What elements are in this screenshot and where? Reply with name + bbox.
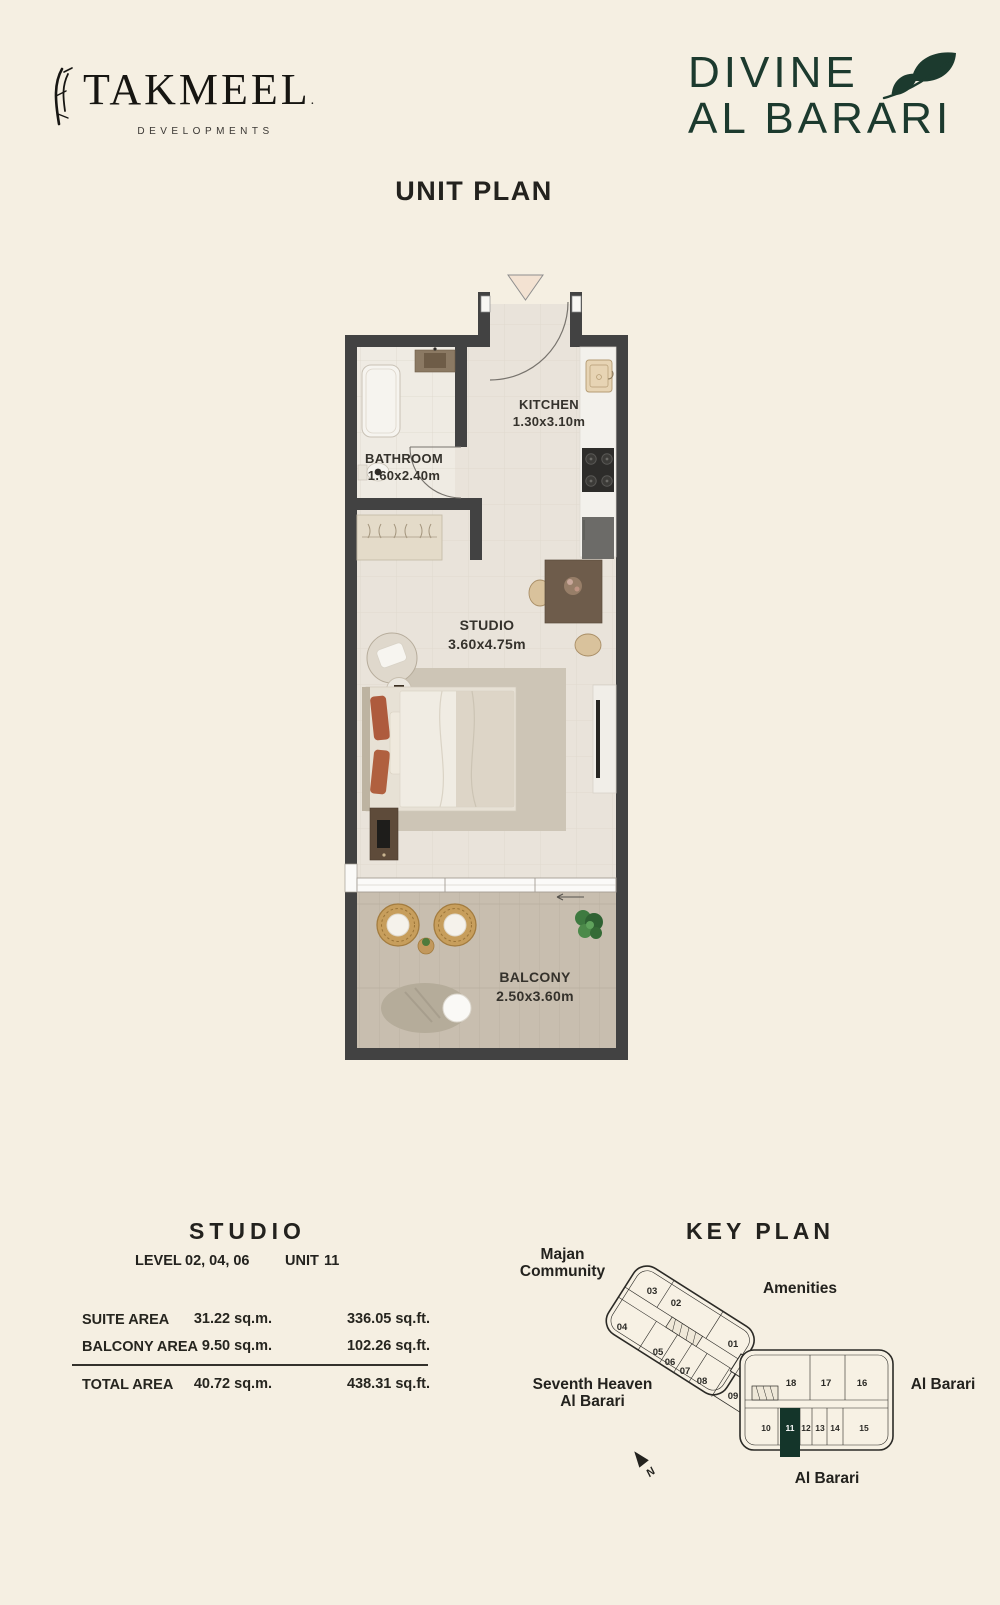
keyplan-unit-10: 10 [761,1423,771,1433]
leaf-icon [856,48,960,102]
balcony-label: BALCONY 2.50x3.60m [455,968,615,1006]
level-value: 02, 04, 06 [185,1253,250,1269]
keyplan-unit-17: 17 [821,1378,832,1389]
studio-label: STUDIO 3.60x4.75m [407,616,567,654]
amenities-label: Amenities [745,1280,855,1297]
tv-console [593,685,616,793]
takmeel-name: TAKMEEL. [83,64,317,115]
majan-line2: Community [505,1263,620,1280]
table-divider [72,1364,428,1366]
unit-plan-page: TAKMEEL. DEVELOPMENTS DIVINE AL BARARI U… [0,0,1000,1605]
keyplan-unit-06: 06 [665,1357,676,1368]
keyplan-unit-08: 08 [697,1376,708,1387]
takmeel-tagline: DEVELOPMENTS [83,126,328,137]
area-row-balcony: BALCONY AREA 9.50 sq.m. 102.26 sq.ft. [82,1338,432,1356]
floor-plan [340,255,632,1067]
area-row-total: TOTAL AREA 40.72 sq.m. 438.31 sq.ft. [82,1376,432,1394]
north-arrow-icon: N [629,1448,659,1480]
bathroom-label: BATHROOM 1.60x2.40m [324,450,484,484]
bathroom-name: BATHROOM [324,450,484,467]
keyplan-unit-11: 11 [786,1423,795,1433]
kitchen-dims: 1.30x3.10m [469,413,629,430]
wardrobe [357,515,442,560]
seventh-line2: Al Barari [525,1393,660,1410]
keyplan-unit-18: 18 [786,1378,797,1389]
albarari-bottom-label: Al Barari [777,1470,877,1487]
suite-area-sqft: 336.05 sq.ft. [296,1311,430,1327]
unit-label: UNIT [285,1253,319,1269]
studio-name: STUDIO [407,616,567,635]
majan-line1: Majan [505,1246,620,1263]
keyplan-unit-09: 09 [728,1391,739,1402]
balcony-area-sqft: 102.26 sq.ft. [296,1338,430,1354]
keyplan-unit-03: 03 [647,1286,658,1297]
keyplan-unit-05: 05 [653,1347,664,1358]
balcony-area-sqm: 9.50 sq.m. [152,1338,272,1354]
divine-logo: DIVINE AL BARARI [688,50,952,142]
keyplan-unit-04: 04 [617,1322,628,1333]
majan-community-label: Majan Community [505,1246,620,1280]
keyplan-unit-14: 14 [830,1423,840,1433]
kitchen-label: KITCHEN 1.30x3.10m [469,396,629,430]
kitchen-name: KITCHEN [469,396,629,413]
north-label: N [644,1465,658,1480]
entry-direction-icon [508,275,543,300]
keyplan-unit-07: 07 [680,1366,691,1377]
takmeel-mark-icon [45,66,77,128]
keyplan-unit-12: 12 [801,1423,811,1433]
total-area-sqft: 438.31 sq.ft. [296,1376,430,1392]
keyplan-unit-15: 15 [859,1423,869,1433]
keyplan-unit-16: 16 [857,1378,868,1389]
keyplan-unit-13: 13 [815,1423,825,1433]
tv-dresser [370,808,398,860]
page-title: UNIT PLAN [374,176,574,207]
bed [362,687,516,811]
albarari-right-label: Al Barari [893,1376,993,1393]
kitchen-counter [580,347,616,559]
studio-dims: 3.60x4.75m [407,635,567,654]
level-label: LEVEL [135,1253,182,1269]
divine-line2: AL BARARI [688,96,952,142]
balcony-dims: 2.50x3.60m [455,987,615,1006]
fridge [582,517,614,559]
details-heading: STUDIO [160,1218,335,1245]
takmeel-name-text: TAKMEEL [83,65,311,114]
keyplan-unit-01: 01 [728,1339,739,1350]
total-area-sqm: 40.72 sq.m. [152,1376,272,1392]
takmeel-reg-mark: . [311,93,318,108]
seventh-heaven-label: Seventh Heaven Al Barari [525,1376,660,1410]
seventh-line1: Seventh Heaven [525,1376,660,1393]
area-row-suite: SUITE AREA 31.22 sq.m. 336.05 sq.ft. [82,1311,432,1329]
unit-value: 11 [324,1253,339,1269]
keyplan-unit-02: 02 [671,1298,682,1309]
bathroom-dims: 1.60x2.40m [324,467,484,484]
suite-area-sqm: 31.22 sq.m. [152,1311,272,1327]
balcony-name: BALCONY [455,968,615,987]
keyplan-right-wing [740,1350,893,1450]
